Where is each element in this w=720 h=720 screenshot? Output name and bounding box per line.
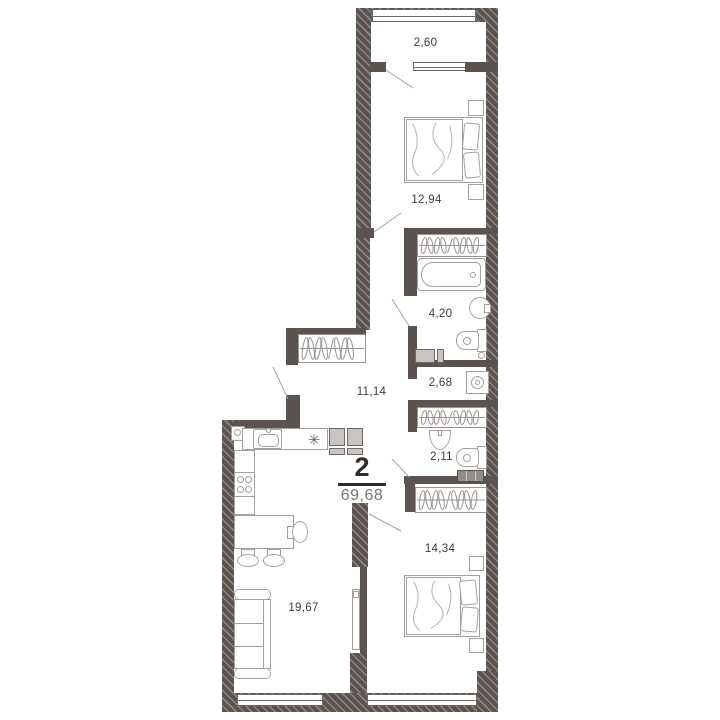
burner <box>245 476 252 483</box>
dining-table <box>234 515 294 549</box>
bathtub-drain <box>470 272 476 278</box>
wc-left-wall <box>408 407 417 432</box>
partition-top-block <box>352 503 368 567</box>
bathroom-washbasin-tap <box>484 304 491 313</box>
kitchen-sink <box>253 429 282 449</box>
bed2-mattress <box>406 577 461 635</box>
floor-plan: ✳ <box>0 0 720 720</box>
balcony-window <box>372 9 476 22</box>
tv-panel <box>352 589 360 650</box>
washing-machine-knob <box>475 380 480 385</box>
bed1-nightstand-top <box>468 100 484 116</box>
kitchen-vent-hole <box>234 429 241 436</box>
kitchen-sink-tap <box>266 428 271 433</box>
apartment-summary-divider <box>338 483 386 486</box>
room-area-label-bedroom-1: 12,94 <box>399 194 454 206</box>
tv-bracket <box>353 591 359 598</box>
wall-left-upper <box>356 8 371 230</box>
wc-washbasin-tap <box>438 430 442 436</box>
apartment-rooms-count: 2 <box>335 452 389 483</box>
bathroom-cabinet <box>415 349 435 363</box>
kitchen-sink-basin <box>258 434 279 447</box>
living-room-window <box>237 694 323 706</box>
partition-thin-wall <box>360 567 367 655</box>
bed2-nightstand-top <box>469 556 484 571</box>
hob-symbol: ✳ <box>302 431 326 449</box>
bed2-pillow-bottom <box>460 606 479 632</box>
room-area-label-corridor: 11,14 <box>344 386 399 398</box>
hall-left-wall <box>286 337 298 365</box>
dining-chair-1-back <box>237 554 259 567</box>
apartment-total-area: 69,68 <box>332 487 392 505</box>
fridge-cell-1 <box>329 428 345 446</box>
bathroom-cabinet-small <box>437 349 444 363</box>
washing-machine <box>466 371 489 394</box>
bedroom1-door-jamb <box>356 228 374 238</box>
bathroom-wardrobe <box>417 234 487 257</box>
burner <box>245 486 252 493</box>
bed1-nightstand-bottom <box>468 184 484 200</box>
bed1-pillow-top <box>462 122 480 150</box>
bedroom2-wardrobe <box>415 487 487 513</box>
sofa-backrest <box>263 599 271 669</box>
burner <box>237 476 244 483</box>
bed2-pillow-top <box>459 579 478 605</box>
room-area-label-bedroom-2: 14,34 <box>411 543 469 555</box>
bathroom-wall-valve <box>478 352 485 359</box>
bed1-mattress <box>406 119 463 181</box>
corner-bottom-right <box>477 671 498 712</box>
bedroom2-window <box>367 694 477 706</box>
wc-wardrobe <box>417 407 487 428</box>
sofa-armrest-bottom <box>234 668 271 679</box>
room-area-label-bathroom: 4,20 <box>413 308 468 320</box>
room-area-label-wc: 2,11 <box>414 451 469 463</box>
dining-chair-right-back <box>292 521 308 543</box>
stove <box>234 472 255 497</box>
dining-chair-2-back <box>263 554 285 567</box>
balcony-divider-window <box>413 62 467 71</box>
wall-left-corridor <box>356 238 370 330</box>
corridor-wardrobe <box>298 334 366 363</box>
balcony-divider-right <box>465 62 498 72</box>
burner <box>237 486 244 493</box>
room-area-label-balcony: 2,60 <box>398 37 453 49</box>
wall-left-lower <box>222 420 234 712</box>
entry-pier <box>286 395 300 422</box>
bathroom-left-wall <box>404 228 417 296</box>
bed1-pillow-bottom <box>463 151 481 178</box>
bathtub <box>417 258 486 291</box>
bed2-nightstand-bottom <box>469 638 484 653</box>
room-area-label-living-kitchen: 19,67 <box>276 602 331 614</box>
wc-radiator-box <box>457 470 484 482</box>
room-area-label-hallway-niche: 2,68 <box>413 377 468 389</box>
wc-top-wall <box>408 400 498 407</box>
sofa-seats <box>234 599 264 669</box>
bedroom2-entry-wall <box>405 476 415 512</box>
balcony-divider-left <box>370 62 386 72</box>
fridge-cell-2 <box>347 428 363 446</box>
toilet-bowl-hole <box>463 337 471 345</box>
